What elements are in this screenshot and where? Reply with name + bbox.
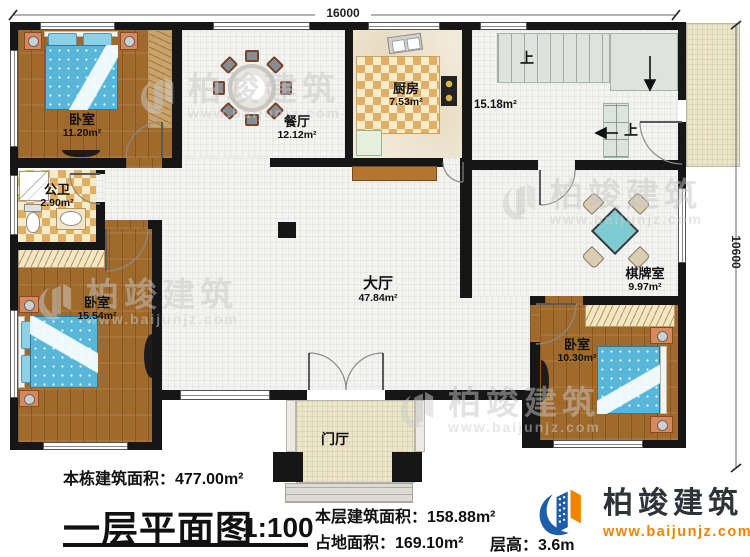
sideboard [352,166,437,181]
chess-door-threshold [538,160,575,170]
window [180,390,270,400]
room-name: 大厅 [343,276,413,293]
stove [441,76,457,106]
room-name: 棋牌室 [610,267,680,282]
room-area: 2.90m² [22,198,92,210]
room-label-stair-hall: 15.18m² [474,99,534,112]
bedroom3-door-threshold2 [530,302,540,342]
room-area: 9.97m² [610,282,680,294]
window [480,22,527,30]
room-name: 门厅 [300,432,370,448]
wall [96,170,105,174]
wall [583,296,678,305]
nightstand [24,32,42,50]
brand-url: www.baijunjz.com [603,525,750,540]
room-area: 15.18m² [474,99,534,112]
room-name: 卧室 [62,296,132,311]
column [278,222,296,238]
dining-chair [213,81,225,95]
brand-name: 柏竣建筑 [603,489,750,519]
wall [10,158,126,168]
porch-rail-left [286,400,296,452]
brand-text: 柏竣建筑 www.baijunjz.com [603,489,750,540]
dim-tick [731,464,741,472]
wall [10,242,105,250]
room-area: 15.54m² [62,311,132,323]
window [553,440,643,448]
room-label-hall: 大厅47.84m² [343,276,413,305]
window [43,442,128,450]
bedroom2-closet [18,248,105,268]
room-area: 10.30m² [542,353,612,365]
room-label-bathroom: 公卫2.90m² [22,183,92,209]
plan-scale: 1:100 [242,512,314,544]
wall [162,158,182,168]
window [10,175,18,235]
wall [530,342,540,448]
nightstand [120,32,138,50]
dining-chair [245,50,259,62]
room-label-dining: 餐厅12.12m² [262,115,332,141]
wall [270,158,350,167]
window [678,188,686,263]
room-label-bedroom3: 卧室10.30m² [542,338,612,364]
porch-rail-right [415,400,425,452]
bed-headboard [660,346,667,414]
wall [472,160,538,170]
bathroom-door-threshold [96,174,105,202]
room-name: 公卫 [22,183,92,198]
window [368,22,440,30]
sink-basin [406,37,421,51]
nightstand [650,416,673,433]
wall [575,160,678,170]
wall [152,220,162,450]
bedroom3-closet [585,304,675,327]
room-label-bedroom2: 卧室15.54m² [62,296,132,322]
window [10,310,18,398]
building-total-area: 本栋建筑面积：477.00m² [63,465,244,489]
porch-pillar-left [273,452,303,482]
dim-tick [9,10,17,20]
room-label-bedroom1: 卧室11.20m² [47,113,117,139]
toilet [26,212,40,233]
dining-chair [280,81,292,95]
bed [30,316,98,388]
land-area: 占地面积：169.10m² [315,529,464,553]
wall [462,30,472,160]
dimension-top: 16000 [315,6,371,20]
dining-chair [245,114,259,126]
wall [385,390,530,400]
stair-up-label: 上 [624,120,638,140]
bed [45,45,118,110]
room-name: 餐厅 [262,115,332,130]
stair-landing [610,33,678,91]
nightstand [650,327,673,344]
room-area: 12.12m² [262,130,332,142]
wall [530,296,540,302]
stair-upper-flight [497,33,610,83]
entry-steps [285,483,413,503]
room-name: 卧室 [47,113,117,128]
room-area: 11.20m² [47,128,117,140]
wall [96,220,104,229]
window [40,22,115,30]
brand-logo-icon [533,484,595,544]
room-name: 卧室 [542,338,612,353]
wall [172,22,182,168]
window [213,22,310,30]
room-name: 厨房 [371,82,441,97]
fridge [356,130,382,156]
porch-pillar-right [392,452,422,482]
wall [522,390,530,448]
side-door-opening [678,100,686,122]
bedroom2-door-threshold [104,220,148,229]
sink-basin [392,39,407,53]
window [10,50,18,147]
corridor-floor [105,158,162,229]
room-label-kitchen: 厨房7.53m² [371,82,441,108]
wall [460,158,472,298]
nightstand [19,296,39,313]
bedroom3-door-threshold [545,296,583,305]
bedroom1-wardrobe [148,30,172,128]
sink [60,211,82,226]
room-label-foyer: 门厅 [300,432,370,448]
dining-table [228,64,276,112]
floor-plan: 柏竣建筑www.baijunjz.com 柏竣建筑www.baijunjz.co… [0,0,750,557]
stair-up-label: 上 [520,48,534,68]
bedroom1-door-threshold [126,158,162,168]
brand-logo: 柏竣建筑 www.baijunjz.com [533,484,750,544]
floor-area: 本层建筑面积：158.88m² [315,503,496,527]
side-patio [686,23,740,167]
dimension-right: 10600 [729,222,743,282]
title-underline [63,543,308,547]
room-label-chess-room: 棋牌室9.97m² [610,267,680,293]
room-area: 47.84m² [343,293,413,305]
nightstand [19,390,39,407]
room-area: 7.53m² [371,97,441,109]
dim-tick [672,10,680,20]
wall [345,22,353,162]
